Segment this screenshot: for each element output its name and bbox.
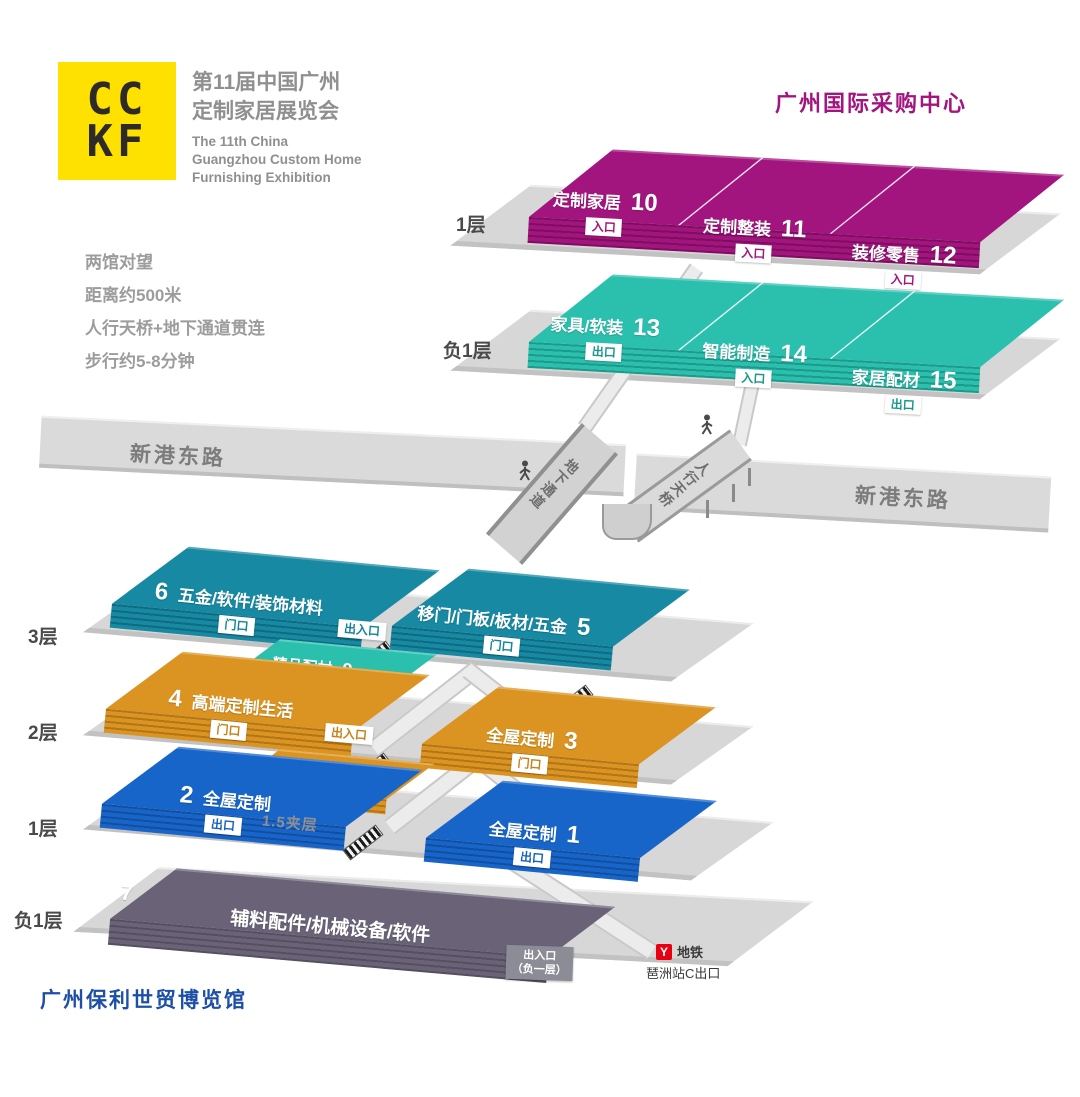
logo-line-1: CC [87, 79, 148, 121]
hall-1-exit-badge: 出口 [513, 847, 551, 868]
hall-5-number: 5 [576, 613, 592, 642]
hall-3-number: 3 [563, 727, 579, 756]
hall-15: 家居配材 15 出口 [827, 361, 980, 418]
footbridge-leg [732, 484, 735, 502]
hall-2-number: 2 [179, 781, 195, 810]
hall-12-entrance-badge: 入口 [884, 270, 921, 290]
hall-6: 6 五金/软件/装饰材料 门口 [118, 540, 369, 564]
hall-10-name: 定制家居 [552, 185, 621, 214]
hall-10-entrance-badge: 入口 [585, 217, 622, 237]
title-en-line2: Guangzhou Custom Home [192, 151, 362, 169]
road-label-west: 新港东路 [129, 438, 226, 473]
hall-11-entrance-badge: 入口 [735, 243, 772, 263]
hall-10-number: 10 [630, 189, 658, 218]
pc-slab-1f: 定制家居 10 入口 定制整装 11 入口 装修零售 12 入口 [533, 145, 984, 170]
expo-title: 广州保利世贸博览馆 [40, 984, 247, 1014]
pc-floor1-label: 1层 [456, 210, 486, 237]
b1-access-badge: 出入口 （负一层） [505, 945, 573, 981]
info-line2: 距离约500米 [85, 279, 265, 312]
footbridge-leg [748, 468, 751, 486]
venue-map: CC KF 第11届中国广州 定制家居展览会 The 11th China Gu… [0, 0, 1080, 1097]
hall-4-number: 4 [167, 685, 183, 714]
metro-label: 地铁 [677, 942, 703, 961]
road-label-east: 新港东路 [854, 479, 952, 514]
expo-floor2-label: 2层 [28, 718, 58, 745]
b1-access-line2: （负一层） [512, 962, 567, 978]
pc-floorB1-label: 负1层 [443, 336, 492, 363]
hall-10: 定制家居 10 入口 [526, 183, 681, 276]
hall-13-exit-badge: 出口 [585, 342, 622, 362]
hall-1-number: 1 [565, 821, 581, 850]
title-cn-line1: 第11届中国广州 [192, 68, 362, 97]
pedestrian-icon [700, 414, 714, 436]
hall-12: 装修零售 12 入口 [827, 236, 980, 293]
pedestrian-icon [518, 460, 532, 482]
hall-15-exit-badge: 出口 [884, 395, 921, 415]
footbridge-foot [602, 504, 652, 540]
hall-6-number: 6 [154, 578, 170, 607]
hall-2-name: 全屋定制 [202, 784, 272, 815]
title-cn-line2: 定制家居展览会 [192, 97, 362, 126]
hall-11-number: 11 [780, 215, 807, 244]
cchf-logo: CC KF [58, 62, 176, 180]
metro-exit-info: Y 地铁 琶洲站C出口 [656, 942, 720, 982]
hall-14-number: 14 [780, 340, 808, 369]
hall-5-gate-badge: 门口 [483, 635, 521, 656]
hall-12-name: 装修零售 [851, 238, 920, 267]
hall-7: 7 辅料配件/机械设备/软件 [115, 863, 553, 901]
hall-3-name: 全屋定制 [485, 721, 555, 752]
title-en-line3: Furnishing Exhibition [192, 169, 362, 187]
info-line3: 人行天桥+地下通道贯连 [85, 312, 265, 345]
info-line4: 步行约5-8分钟 [85, 345, 265, 378]
hall-1-name: 全屋定制 [488, 815, 558, 846]
hall-13-number: 13 [632, 314, 660, 343]
exhibition-title: 第11届中国广州 定制家居展览会 The 11th China Guangzho… [192, 68, 362, 187]
metro-logo-icon: Y [656, 944, 672, 960]
hall-11: 定制整装 11 入口 [677, 209, 831, 284]
hall-13: 家具/软装 13 出口 [526, 308, 681, 401]
hall-6-gate-badge: 门口 [218, 615, 256, 636]
hall-11-name: 定制整装 [702, 212, 771, 241]
hall-14: 智能制造 14 入口 [677, 334, 831, 409]
metro-exit-label: 琶洲站C出口 [646, 963, 720, 982]
hall-14-entrance-badge: 入口 [735, 368, 772, 388]
info-line1: 两馆对望 [85, 246, 265, 279]
hall-2-exit-badge: 出口 [204, 815, 242, 836]
purchasing-center-title: 广州国际采购中心 [775, 86, 967, 118]
hall-15-name: 家居配材 [851, 363, 920, 392]
hall-12-number: 12 [929, 241, 957, 270]
expo-floor3-label: 3层 [28, 622, 58, 649]
hall-14-name: 智能制造 [702, 337, 771, 366]
hall-4-gate-badge: 门口 [210, 720, 248, 741]
hall-3-gate-badge: 门口 [511, 753, 549, 774]
expo-floorB1-label: 负1层 [14, 906, 63, 933]
distance-info: 两馆对望 距离约500米 人行天桥+地下通道贯连 步行约5-8分钟 [85, 246, 265, 378]
title-en-line1: The 11th China [192, 133, 362, 151]
hall-13-name: 家具/软装 [550, 310, 624, 339]
logo-line-2: KF [87, 121, 148, 163]
hall-15-number: 15 [929, 366, 957, 395]
footbridge-leg [706, 500, 709, 518]
expo-floor1-label: 1层 [28, 814, 58, 841]
